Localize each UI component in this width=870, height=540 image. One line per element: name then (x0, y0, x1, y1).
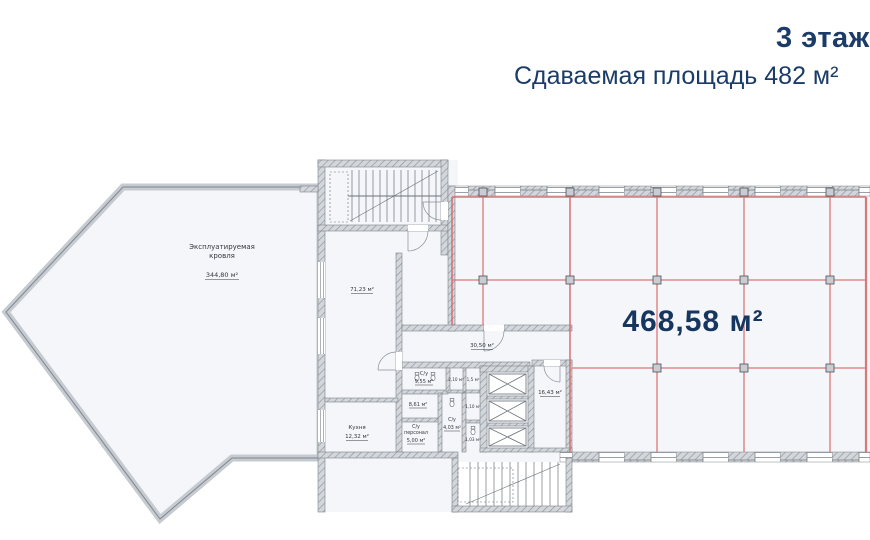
stall-4-area: 1,03 м² (465, 437, 481, 442)
wc-main-name: С/у (420, 371, 428, 377)
wc-staff-name2: персонал (404, 431, 428, 436)
room-71-area: 71,23 м² (350, 286, 374, 293)
stall-3-area: 1,10 м² (465, 404, 481, 409)
wc-staff-name1: С/у (412, 424, 420, 430)
roof-label-line2: кровля (209, 252, 235, 260)
wc-small-area: 4,03 м² (443, 425, 461, 431)
kitchen-name: Кухня (348, 425, 365, 431)
corridor-area: 30,50 м² (470, 342, 494, 349)
floor-plan: Эксплуатируемая кровля 344,80 м² 468,58 … (0, 0, 870, 540)
stall-2-area: 1,5 м² (467, 377, 480, 382)
staircase-bottom (458, 462, 560, 506)
stall-1-area: 2,10 м² (448, 377, 464, 382)
wc-small-name: С/у (448, 417, 456, 423)
wc-staff-area: 5,00 м² (407, 438, 426, 444)
wc-main-area: 9,55 м² (415, 379, 434, 385)
roof-terrace-outline (6, 187, 320, 519)
lobby-area: 16,43 м² (538, 389, 562, 396)
kitchen-area: 12,32 м² (345, 433, 369, 440)
room-861-area: 8,61 м² (409, 402, 428, 408)
roof-area-label: 344,80 м² (206, 271, 239, 279)
roof-label-line1: Эксплуатируемая (189, 243, 255, 251)
open-space-area-label: 468,58 м² (622, 305, 763, 338)
core-window-gaps (318, 262, 325, 442)
elevator-shafts (489, 374, 526, 446)
